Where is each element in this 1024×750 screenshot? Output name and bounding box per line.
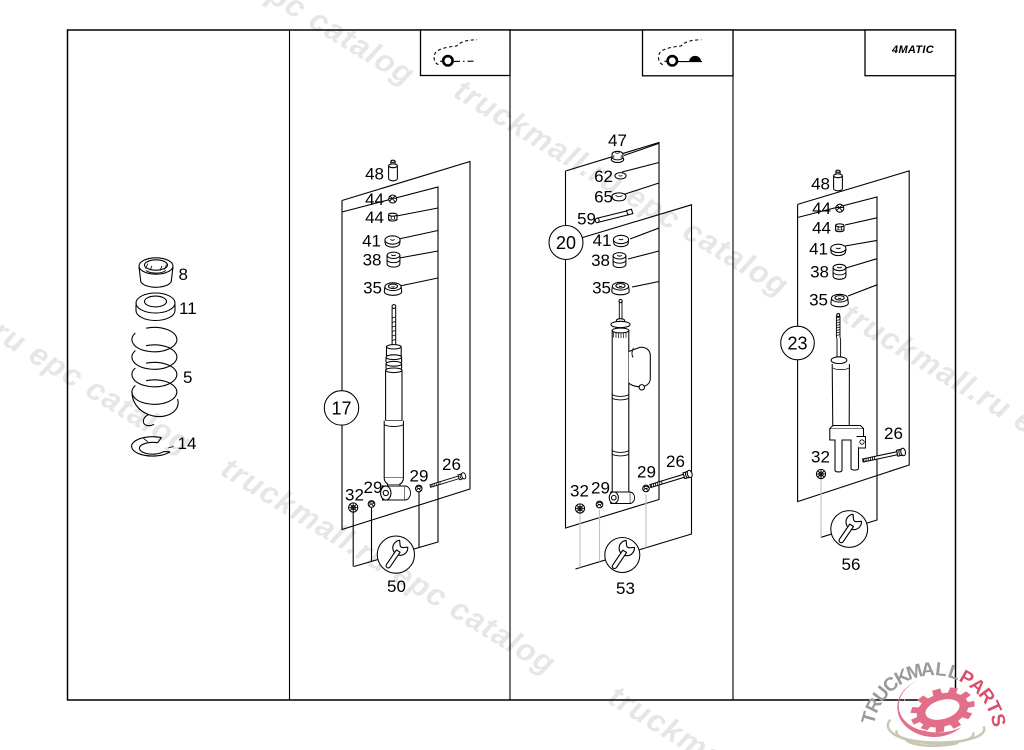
svg-text:29: 29 [410, 467, 429, 486]
svg-text:32: 32 [345, 486, 364, 505]
svg-text:38: 38 [363, 251, 382, 270]
svg-text:38: 38 [591, 251, 610, 270]
svg-text:A: A [920, 659, 936, 681]
svg-text:62: 62 [594, 167, 613, 186]
svg-text:47: 47 [608, 131, 627, 150]
svg-text:59: 59 [577, 210, 596, 229]
svg-text:48: 48 [811, 175, 830, 194]
svg-text:5: 5 [183, 368, 192, 387]
svg-text:29: 29 [591, 479, 610, 498]
svg-text:11: 11 [179, 299, 197, 318]
svg-text:26: 26 [666, 452, 685, 471]
svg-text:truckmall.ru epc catalog: truckmall.ru epc catalog [448, 72, 795, 303]
svg-text:29: 29 [637, 463, 656, 482]
svg-text:32: 32 [570, 482, 589, 501]
svg-text:8: 8 [179, 265, 188, 284]
svg-text:35: 35 [363, 279, 382, 298]
svg-text:35: 35 [809, 291, 828, 310]
svg-text:29: 29 [364, 478, 383, 497]
svg-text:32: 32 [811, 448, 830, 467]
svg-text:truckmall.ru epc catalog: truckmall.ru epc catalog [0, 230, 198, 461]
svg-text:35: 35 [592, 279, 611, 298]
svg-text:41: 41 [593, 231, 612, 250]
svg-text:53: 53 [616, 579, 635, 598]
svg-text:4MATIC: 4MATIC [891, 44, 935, 56]
svg-text:26: 26 [884, 424, 903, 443]
svg-text:14: 14 [178, 434, 197, 453]
svg-text:41: 41 [362, 232, 381, 251]
svg-text:44: 44 [365, 208, 384, 227]
svg-text:23: 23 [787, 333, 807, 353]
svg-text:44: 44 [812, 199, 831, 218]
svg-text:truckmall.ru epc catalog: truckmall.ru epc catalog [74, 0, 421, 92]
svg-text:truckmall.ru epc catalog: truckmall.ru epc catalog [836, 296, 1024, 527]
svg-text:65: 65 [594, 188, 613, 207]
svg-text:44: 44 [365, 190, 384, 209]
svg-text:41: 41 [809, 240, 828, 259]
svg-text:48: 48 [365, 165, 384, 184]
svg-text:44: 44 [812, 219, 831, 238]
svg-text:50: 50 [387, 577, 406, 596]
svg-text:38: 38 [810, 263, 829, 282]
svg-text:17: 17 [331, 398, 351, 418]
svg-text:26: 26 [442, 455, 461, 474]
svg-text:20: 20 [556, 233, 576, 253]
svg-text:56: 56 [842, 555, 861, 574]
